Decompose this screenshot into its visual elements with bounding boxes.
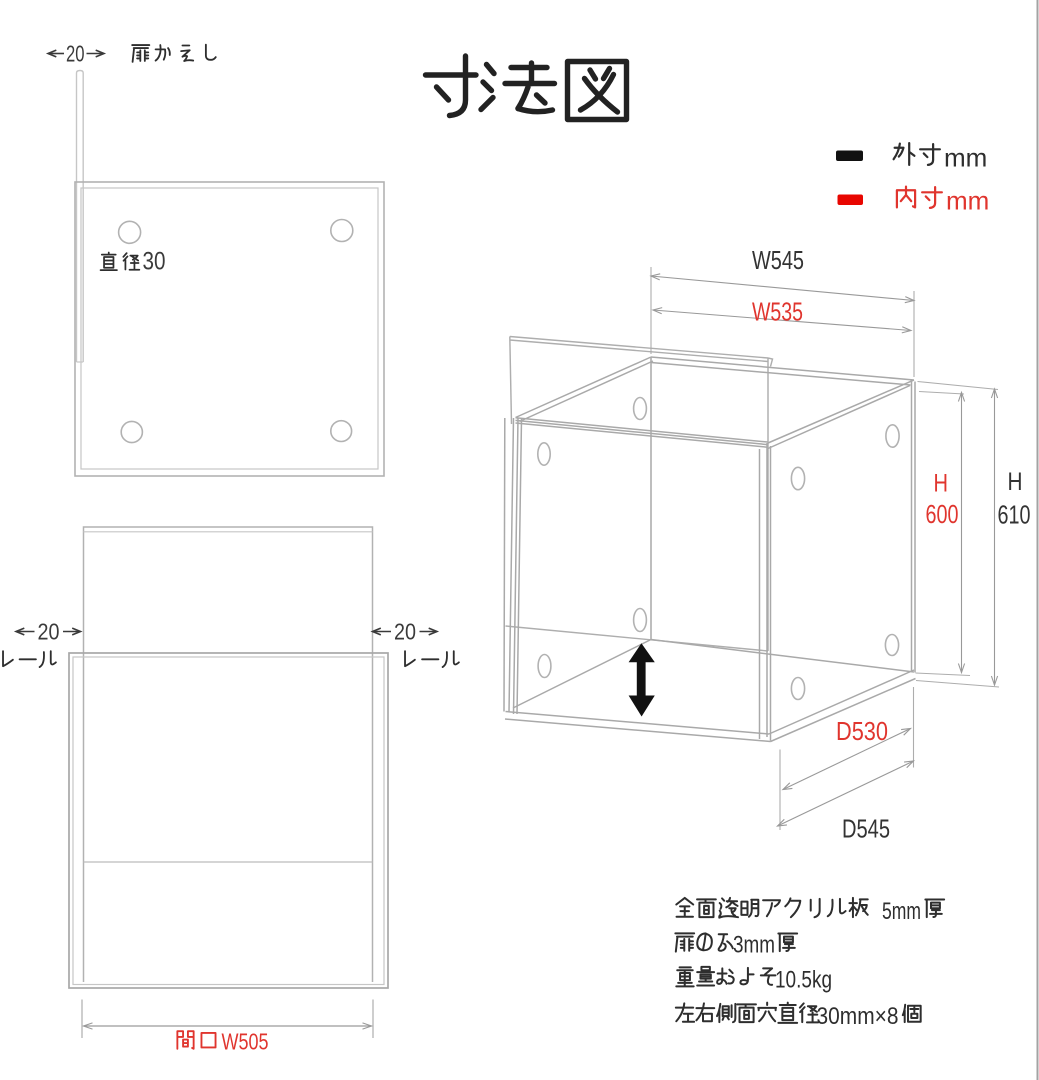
svg-text:mm: mm [946, 186, 989, 216]
svg-text:H: H [934, 470, 949, 498]
svg-text:30: 30 [143, 248, 166, 276]
svg-text:610: 610 [998, 502, 1031, 530]
svg-text:D530: D530 [836, 718, 888, 746]
svg-text:D545: D545 [842, 816, 890, 844]
svg-text:mm: mm [944, 143, 987, 173]
svg-text:5mm: 5mm [882, 898, 921, 925]
svg-text:W535: W535 [752, 297, 803, 327]
svg-text:20: 20 [38, 619, 60, 645]
svg-text:W505: W505 [222, 1029, 269, 1055]
svg-text:600: 600 [926, 501, 959, 529]
svg-text:3mm: 3mm [733, 932, 775, 959]
svg-text:20: 20 [66, 41, 85, 67]
svg-text:30mm×8: 30mm×8 [817, 1003, 899, 1030]
svg-text:H: H [1008, 468, 1023, 496]
svg-text:10.5kg: 10.5kg [775, 967, 832, 994]
svg-text:20: 20 [394, 619, 416, 645]
svg-text:W545: W545 [752, 245, 804, 275]
